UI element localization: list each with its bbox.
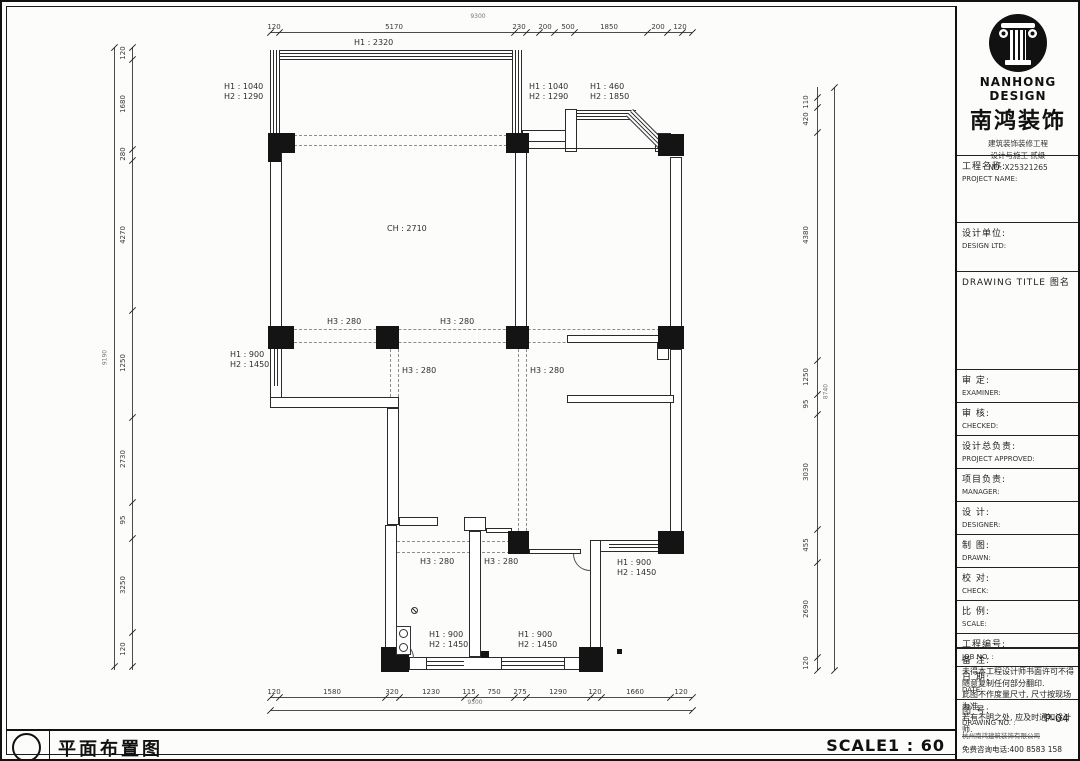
drawing-title-bar: 平面布置图 SCALE1 : 60 <box>6 729 955 761</box>
credential-line: 建筑装饰装修工程 <box>957 138 1079 150</box>
field-label-cn: 校 对: <box>962 571 1074 584</box>
dimension-total: 8740 <box>823 372 830 412</box>
dimension-value: 120 <box>673 23 686 31</box>
dimension-value: 1580 <box>323 688 341 696</box>
dimension-value: 4380 <box>802 215 810 255</box>
dimension-value: 3250 <box>119 565 127 605</box>
dimension-tick <box>689 29 696 36</box>
column <box>268 326 294 349</box>
dimension-value: 1230 <box>422 688 440 696</box>
note-line: 未得本工程设计师书面许可不得 <box>962 666 1074 678</box>
wall <box>670 349 682 532</box>
wall-line <box>525 148 675 149</box>
wall <box>270 397 399 408</box>
window <box>270 349 282 386</box>
beam-dashed-line <box>526 349 527 531</box>
wall <box>409 657 427 670</box>
field-label-en: SCALE: <box>962 620 1074 628</box>
dimension-tick <box>689 694 696 701</box>
dimension-value: 120 <box>588 688 601 696</box>
floor-drain-icon <box>411 607 418 614</box>
column <box>658 134 684 156</box>
plan-height-label: H3 : 280 <box>530 366 564 376</box>
dimension-value: 4270 <box>119 215 127 255</box>
window <box>270 50 522 60</box>
dimension-line <box>817 87 818 670</box>
hotline-phone: 免费咨询电话:400 8583 158 <box>962 744 1062 755</box>
column <box>376 326 399 349</box>
field-label-en: MANAGER: <box>962 488 1074 496</box>
field-label-en: PROJECT APPROVED: <box>962 455 1074 463</box>
company-name: 杭州南鸿建筑装饰有限公司 <box>962 730 1062 740</box>
window <box>427 657 464 670</box>
beam-dashed-line <box>294 329 660 330</box>
dimension-value: 120 <box>267 23 280 31</box>
beam-dashed-line <box>387 552 520 553</box>
title-block-row: 比 例:SCALE: <box>957 600 1079 633</box>
logo-volute-right <box>1028 29 1037 38</box>
column <box>579 647 603 672</box>
nanhong-column-logo-icon <box>989 14 1047 72</box>
dimension-value: 200 <box>538 23 551 31</box>
notes-footer: 杭州南鸿建筑装饰有限公司 免费咨询电话:400 8583 158 <box>962 730 1062 755</box>
logo-base <box>1005 60 1031 65</box>
dimension-value: 1290 <box>549 688 567 696</box>
note-line: 随意复制任何部分翻印. <box>962 678 1074 690</box>
dimension-value: 320 <box>385 688 398 696</box>
washer-drum-icon <box>399 643 408 652</box>
field-label-en: EXAMINER: <box>962 389 1074 397</box>
plan-height-label: H1 : 2320 <box>354 38 393 48</box>
dimension-total: 9190 <box>102 338 109 378</box>
title-block-row: 设 计:DESIGNER: <box>957 501 1079 534</box>
title-block-row: 制 图:DRAWN: <box>957 534 1079 567</box>
beam-dashed-line <box>294 135 507 136</box>
dimension-value: 1660 <box>626 688 644 696</box>
window <box>512 50 522 134</box>
wall <box>590 540 601 657</box>
dimension-value: 420 <box>802 99 810 139</box>
field-label-cn: 工程名称: <box>962 159 1074 172</box>
door-swing-arc <box>573 554 590 571</box>
field-label-en: DESIGN LTD: <box>962 242 1074 250</box>
window <box>270 50 280 142</box>
dimension-total: 9300 <box>467 699 482 706</box>
dimension-tick <box>814 667 821 674</box>
field-label-en: PROJECT NAME: <box>962 175 1074 183</box>
column <box>508 531 529 554</box>
field-label-cn: 审 核: <box>962 406 1074 419</box>
plan-height-label: H1 : 900 H2 : 1450 <box>518 630 557 651</box>
floor-plan-canvas: H1 : 2320H1 : 1040 H2 : 1290H1 : 1040 H2… <box>2 2 955 729</box>
window <box>502 657 564 670</box>
field-label-en: CHECKED: <box>962 422 1074 430</box>
wall <box>270 152 282 327</box>
logo-volute-left <box>999 29 1008 38</box>
title-block-row: DRAWING TITLE 图名 <box>957 271 1079 369</box>
field-label-cn: 设计总负责: <box>962 439 1074 452</box>
plan-height-label: H3 : 280 <box>440 317 474 327</box>
dimension-line <box>270 710 692 711</box>
plan-height-label: H1 : 1040 H2 : 1290 <box>224 82 263 103</box>
dimension-value: 95 <box>119 500 127 540</box>
logo-capital <box>1001 23 1035 28</box>
washer-drum-icon <box>399 629 408 638</box>
column <box>268 133 295 153</box>
wall <box>515 152 527 328</box>
dimension-value: 2690 <box>802 589 810 629</box>
field-label-en: CHECK: <box>962 587 1074 595</box>
plan-height-label: H1 : 1040 H2 : 1290 <box>529 82 568 103</box>
dimension-value: 3030 <box>802 452 810 492</box>
dimension-value: 1250 <box>119 343 127 383</box>
plan-height-label: H1 : 900 H2 : 1450 <box>230 350 269 371</box>
dimension-line <box>132 47 133 670</box>
title-block-row: 审 核:CHECKED: <box>957 402 1079 435</box>
title-bar-divider <box>49 731 50 761</box>
title-block-row: 工程名称:PROJECT NAME: <box>957 155 1079 222</box>
field-label-en: DESIGNER: <box>962 521 1074 529</box>
field-label-cn: 设 计: <box>962 505 1074 518</box>
field-label-en: DRAWN: <box>962 554 1074 562</box>
title-block-row: 校 对:CHECK: <box>957 567 1079 600</box>
window <box>609 540 659 552</box>
wall <box>567 335 662 343</box>
wall <box>567 395 674 403</box>
column <box>506 326 529 349</box>
plan-height-label: H1 : 900 H2 : 1450 <box>429 630 468 651</box>
field-label-cn: 项目负责: <box>962 472 1074 485</box>
notes-section: 备 注: 未得本工程设计师书面许可不得随意复制任何部分翻印.此图不作度量尺寸, … <box>957 647 1079 759</box>
column <box>268 151 281 162</box>
notes-title: 备 注: <box>962 653 1074 666</box>
note-line: 为准. <box>962 701 1074 713</box>
dimension-value: 200 <box>651 23 664 31</box>
revision-circle-icon <box>12 733 41 761</box>
field-label-cn: 设计单位: <box>962 226 1074 239</box>
dimension-value: 120 <box>267 688 280 696</box>
field-label-cn: 审 定: <box>962 373 1074 386</box>
plan-height-label: H1 : 900 H2 : 1450 <box>617 558 656 579</box>
dimension-total: 9300 <box>470 13 485 20</box>
dimension-line <box>270 32 692 33</box>
dimension-value: 455 <box>802 525 810 565</box>
dimension-value: 120 <box>674 688 687 696</box>
plan-height-label: H3 : 280 <box>327 317 361 327</box>
wall <box>565 109 577 152</box>
title-block-row: 设计总负责:PROJECT APPROVED: <box>957 435 1079 468</box>
title-block-row: 审 定:EXAMINER: <box>957 369 1079 402</box>
title-block: NANHONG DESIGN 南鸿装饰 建筑装饰装修工程设计与施工 贰级NO: … <box>955 6 1079 759</box>
dimension-value: 280 <box>119 134 127 174</box>
dimension-value: 500 <box>561 23 574 31</box>
wall <box>387 408 399 525</box>
beam-dashed-line <box>387 541 520 542</box>
dimension-value: 275 <box>513 688 526 696</box>
column <box>506 133 529 153</box>
field-label-cn: 比 例: <box>962 604 1074 617</box>
title-block-row: 设计单位:DESIGN LTD: <box>957 222 1079 271</box>
plan-height-label: H3 : 280 <box>402 366 436 376</box>
dimension-line <box>834 87 835 670</box>
column <box>481 651 489 658</box>
dimension-value: 120 <box>119 629 127 669</box>
dimension-value: 5170 <box>385 23 403 31</box>
title-block-row: 项目负责:MANAGER: <box>957 468 1079 501</box>
dimension-value: 1680 <box>119 84 127 124</box>
beam-dashed-line <box>294 145 507 146</box>
dimension-value: 750 <box>487 688 500 696</box>
dimension-line <box>114 47 115 670</box>
dimension-value: 230 <box>512 23 525 31</box>
notes-lines: 未得本工程设计师书面许可不得随意复制任何部分翻印.此图不作度量尺寸, 尺寸按现场… <box>962 666 1074 736</box>
dimension-line <box>270 697 692 698</box>
plan-height-label: H1 : 460 H2 : 1850 <box>590 82 629 103</box>
plan-height-label: H3 : 280 <box>484 557 518 567</box>
note-line: 若有不明之处, 应及时通知设计 <box>962 712 1074 724</box>
brand-name-cn: 南鸿装饰 <box>957 103 1079 135</box>
column <box>658 326 684 349</box>
logo-shaft <box>1010 30 1026 61</box>
dimension-value: 115 <box>462 688 475 696</box>
column <box>658 531 684 554</box>
floor-plan-sheet: H1 : 2320H1 : 1040 H2 : 1290H1 : 1040 H2… <box>0 0 1080 761</box>
washer-fixture <box>396 626 411 655</box>
wall <box>399 517 438 526</box>
dimension-value: 1850 <box>600 23 618 31</box>
wall <box>670 157 682 327</box>
plan-height-label: CH : 2710 <box>387 224 427 234</box>
dimension-value: 120 <box>802 643 810 683</box>
dimension-value: 95 <box>802 384 810 424</box>
note-line: 此图不作度量尺寸, 尺寸按现场 <box>962 689 1074 701</box>
dimension-tick <box>831 667 838 674</box>
dimension-value: 120 <box>119 33 127 73</box>
brand-name-en: NANHONG DESIGN <box>957 75 1079 103</box>
plan-height-label: H3 : 280 <box>420 557 454 567</box>
field-label-cn: 制 图: <box>962 538 1074 551</box>
dimension-tick <box>689 707 696 714</box>
wall <box>464 517 486 531</box>
column <box>617 649 622 654</box>
field-label-cn: DRAWING TITLE 图名 <box>962 275 1074 288</box>
dimension-value: 2730 <box>119 439 127 479</box>
beam-dashed-line <box>518 349 519 531</box>
drawing-scale: SCALE1 : 60 <box>826 736 945 755</box>
wall <box>469 531 481 657</box>
wall <box>462 657 502 670</box>
drawing-title: 平面布置图 <box>58 735 163 761</box>
